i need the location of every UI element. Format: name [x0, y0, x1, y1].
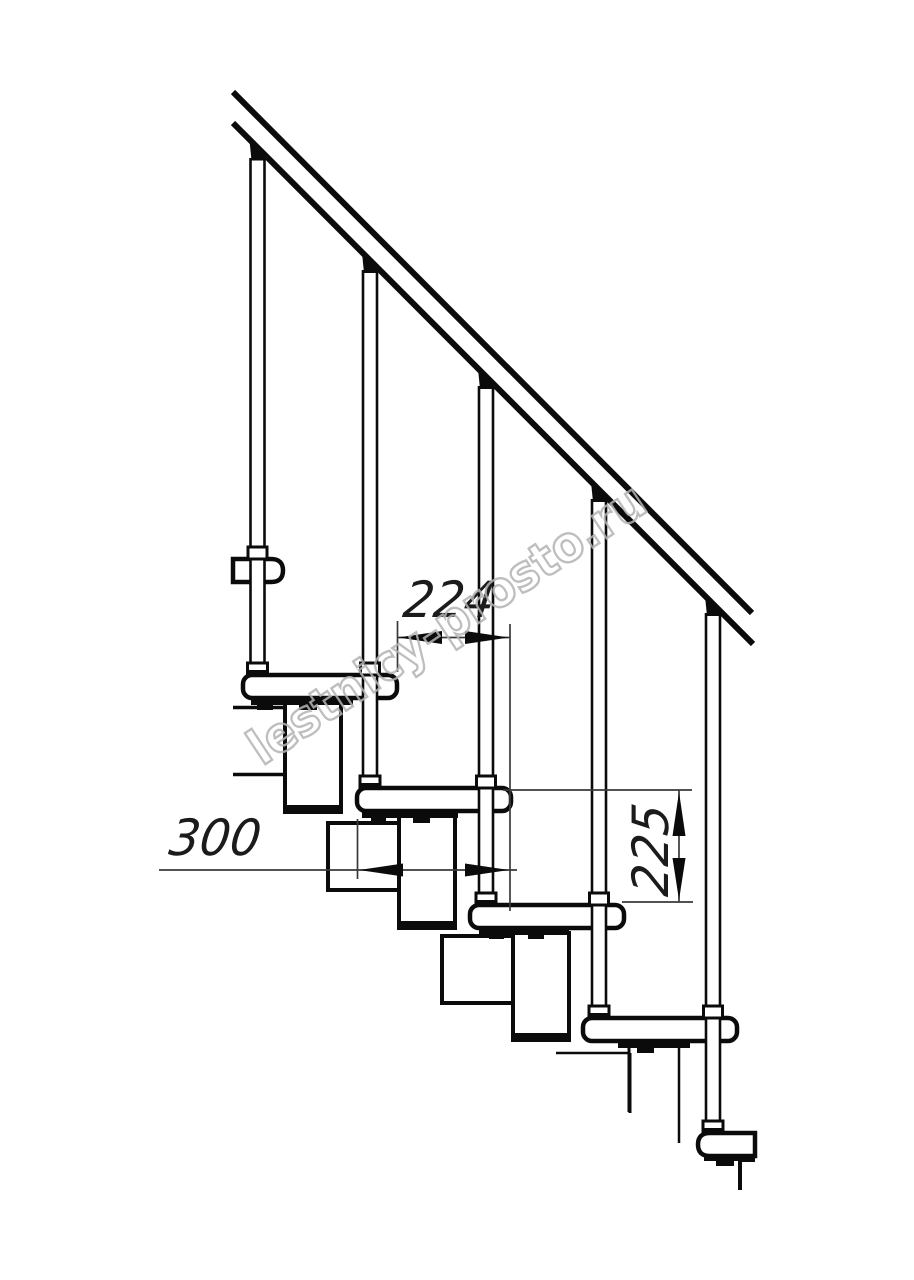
dim-label-225: 225	[622, 800, 680, 899]
technical-drawing-page: 224 300 225 lestnicy-prosto.ru	[0, 0, 914, 1280]
pass-sleeve	[590, 893, 609, 905]
staircase-drawing: 224 300 225 lestnicy-prosto.ru	[0, 0, 914, 1280]
baluster-1	[248, 141, 268, 677]
pass-sleeve	[477, 776, 496, 788]
baluster-5	[703, 596, 723, 1134]
pass-sleeve	[248, 547, 267, 559]
module-connector-5-partial	[556, 1053, 630, 1113]
pass-sleeve	[704, 1006, 723, 1018]
module-under-tread-6-partial	[629, 1044, 679, 1143]
tread-7-cut	[698, 1133, 755, 1156]
baluster-4	[589, 482, 609, 1019]
module-under-tread-7-partial	[740, 1160, 755, 1190]
dim-label-300: 300	[166, 809, 265, 867]
module-connector-4	[442, 936, 518, 1003]
module-under-tread-4	[397, 816, 457, 929]
module-under-tread-5	[511, 933, 571, 1041]
module-connector-3	[328, 823, 404, 890]
